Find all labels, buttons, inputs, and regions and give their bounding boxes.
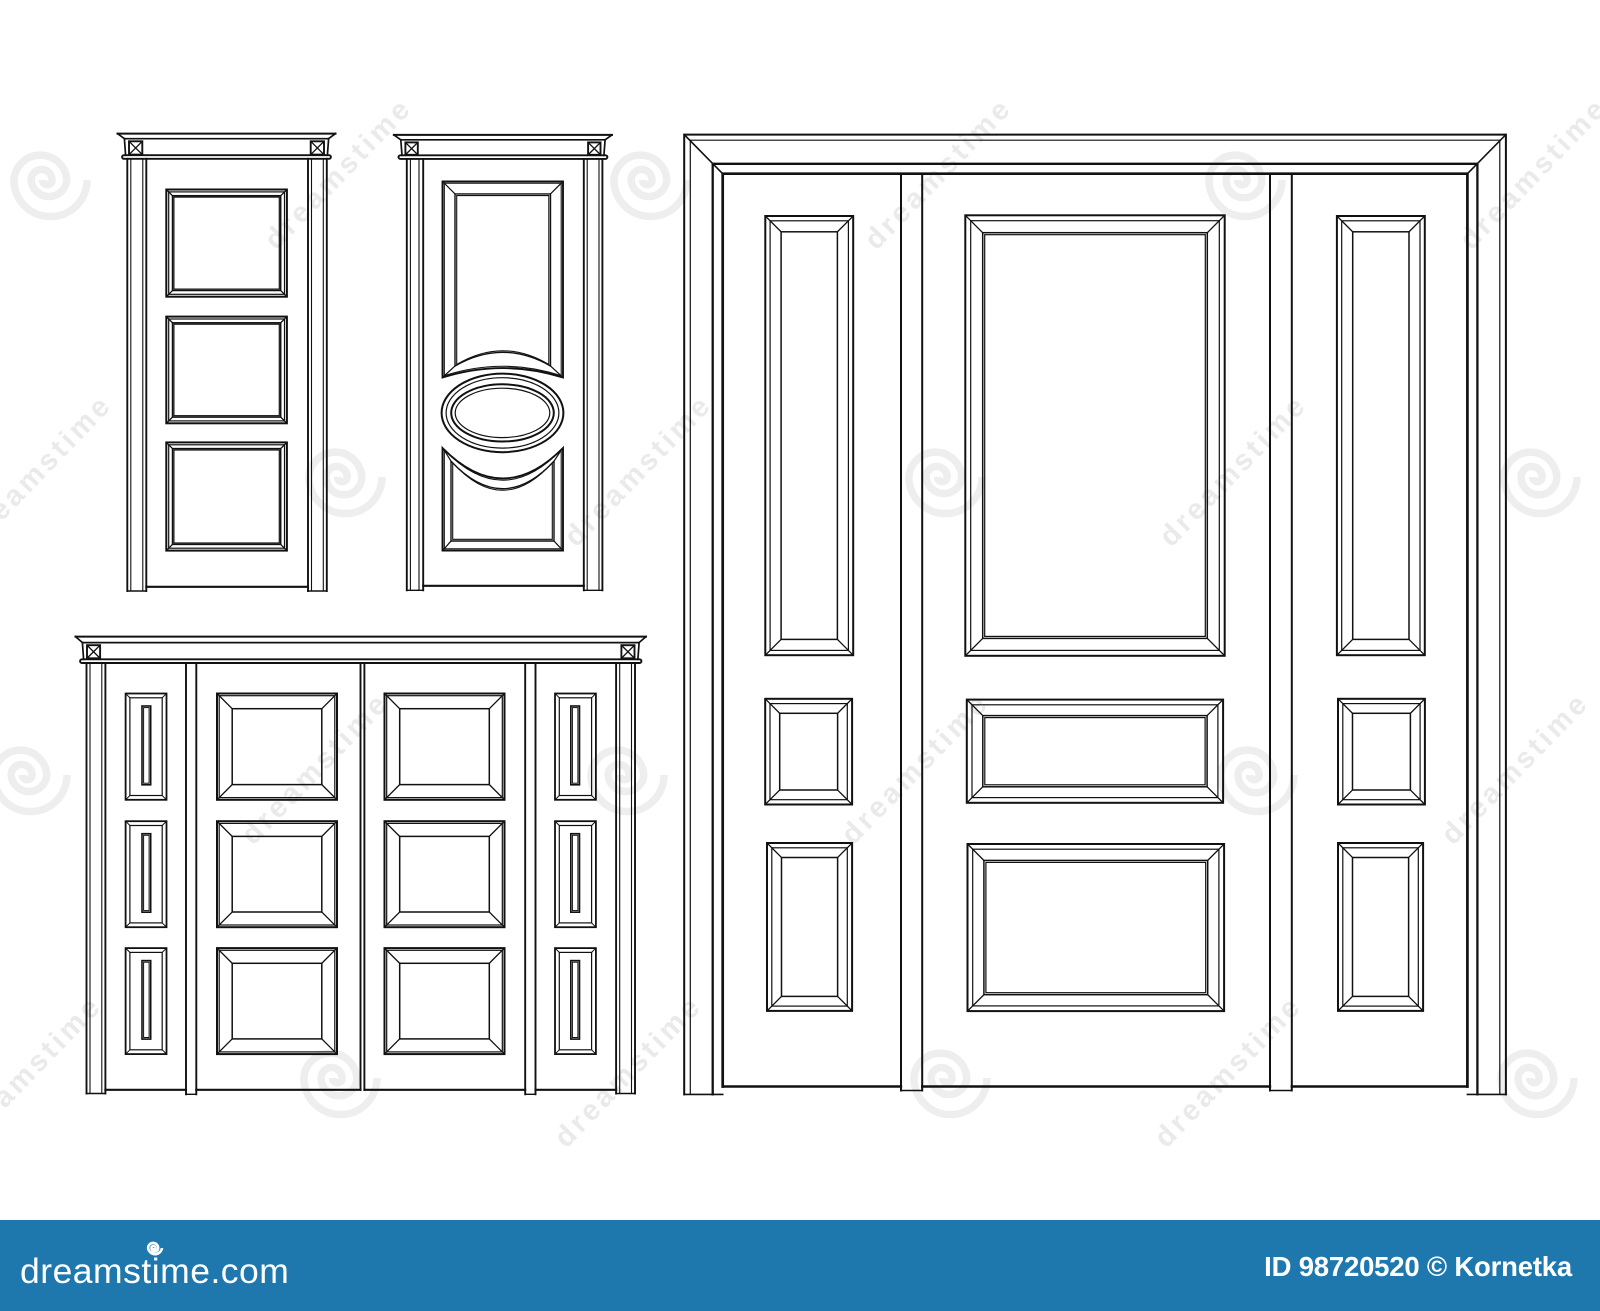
svg-text:ID 98720520 © Kornetka: ID 98720520 © Kornetka	[1264, 1251, 1573, 1282]
svg-text:dreamstime.com: dreamstime.com	[20, 1251, 289, 1291]
